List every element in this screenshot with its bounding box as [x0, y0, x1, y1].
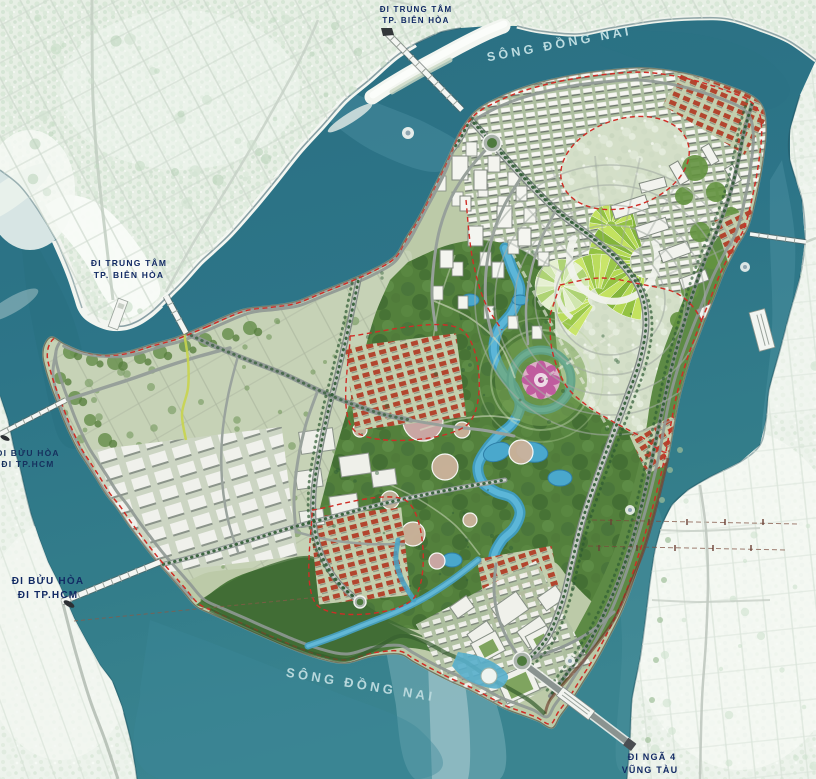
svg-text:ĐI TP.HCM: ĐI TP.HCM	[1, 459, 54, 469]
svg-text:ĐI BỬU HÒA: ĐI BỬU HÒA	[0, 447, 60, 458]
svg-text:ĐI TRUNG TÂM: ĐI TRUNG TÂM	[91, 257, 167, 268]
svg-text:TP. BIÊN HÒA: TP. BIÊN HÒA	[382, 16, 449, 25]
svg-text:ĐI TP.HCM: ĐI TP.HCM	[18, 590, 79, 601]
svg-text:ĐI NGÃ 4: ĐI NGÃ 4	[628, 752, 677, 762]
svg-text:ĐI BỬU HÒA: ĐI BỬU HÒA	[12, 574, 85, 587]
svg-text:ĐI TRUNG TÂM: ĐI TRUNG TÂM	[380, 5, 453, 14]
svg-text:VŨNG TÀU: VŨNG TÀU	[622, 765, 679, 775]
svg-text:TP. BIÊN HÒA: TP. BIÊN HÒA	[94, 269, 164, 280]
